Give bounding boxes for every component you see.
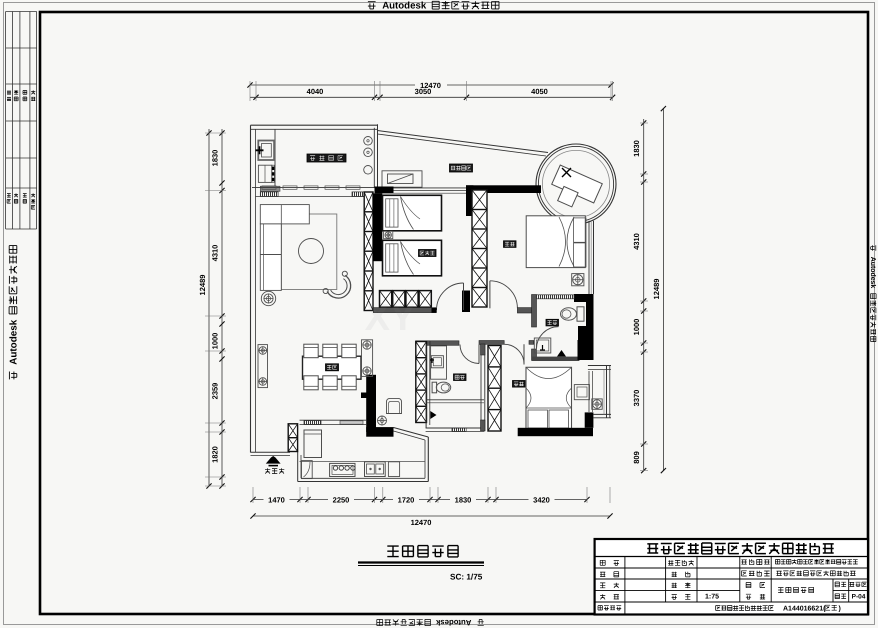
svg-text:1:75: 1:75 (705, 594, 719, 601)
svg-text:4040: 4040 (307, 87, 324, 96)
svg-text:3420: 3420 (533, 495, 550, 504)
svg-text:2359: 2359 (211, 383, 220, 400)
svg-text:1000: 1000 (211, 333, 220, 350)
svg-text:Autodesk: Autodesk (382, 1, 427, 12)
svg-text:A144016621(: A144016621( (783, 604, 826, 612)
svg-text:1830: 1830 (632, 140, 641, 157)
svg-text:809: 809 (632, 451, 641, 464)
svg-text:12489: 12489 (198, 275, 207, 296)
svg-text:4050: 4050 (531, 87, 548, 96)
svg-text:1720: 1720 (398, 495, 415, 504)
svg-text:1000: 1000 (632, 319, 641, 336)
svg-text:Autodesk: Autodesk (435, 618, 471, 627)
svg-text:1830: 1830 (455, 495, 472, 504)
svg-text:XY: XY (365, 297, 416, 339)
svg-text:1830: 1830 (211, 150, 220, 167)
svg-text:3370: 3370 (632, 390, 641, 407)
svg-text:1820: 1820 (211, 446, 220, 463)
svg-text:12470: 12470 (420, 81, 441, 90)
svg-text:12470: 12470 (411, 518, 432, 527)
svg-text:4310: 4310 (632, 233, 641, 250)
svg-text:Autodesk: Autodesk (8, 319, 19, 364)
svg-text:SC: 1/75: SC: 1/75 (450, 573, 483, 582)
svg-text:2250: 2250 (333, 495, 350, 504)
svg-text:4310: 4310 (211, 245, 220, 262)
svg-text:1470: 1470 (268, 495, 285, 504)
svg-text:): ) (839, 604, 841, 612)
svg-text:P-04: P-04 (852, 593, 866, 600)
svg-text:12489: 12489 (652, 279, 661, 300)
svg-text:Autodesk: Autodesk (869, 257, 877, 289)
